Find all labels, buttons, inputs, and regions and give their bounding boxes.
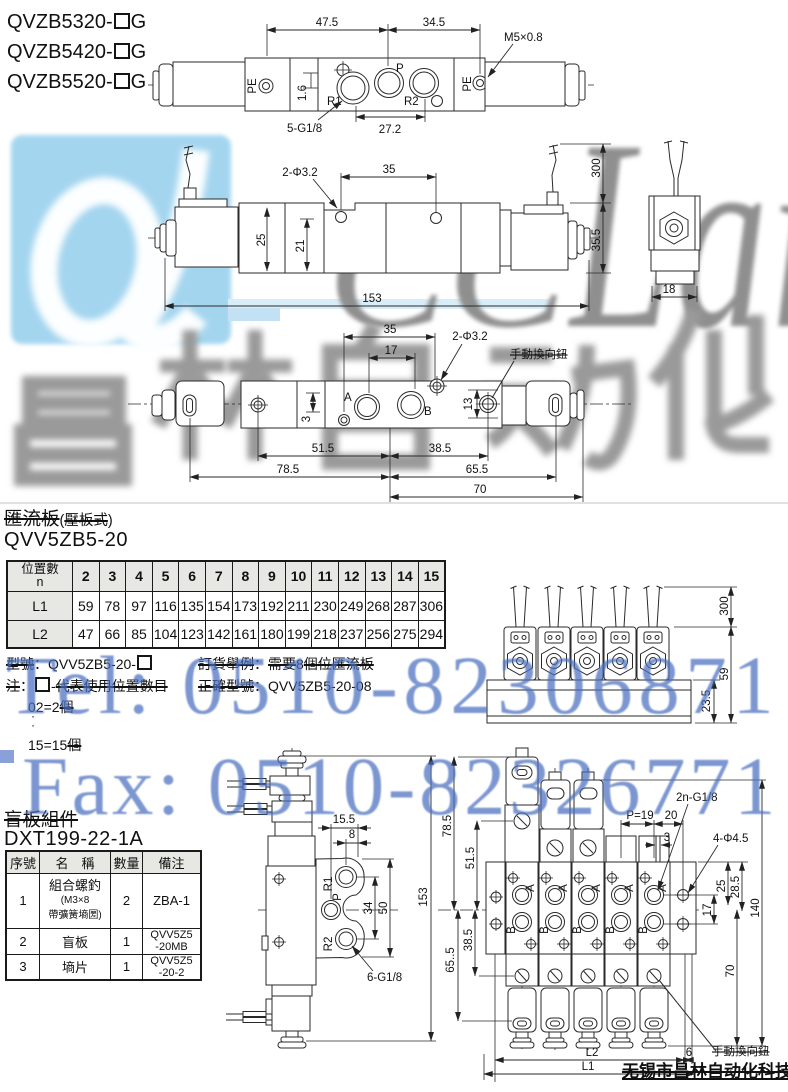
svg-text:35: 35 bbox=[384, 324, 397, 336]
svg-text:21: 21 bbox=[295, 240, 307, 253]
svg-text:8: 8 bbox=[349, 829, 355, 841]
svg-text:18: 18 bbox=[663, 284, 676, 296]
svg-text:2n-G1/8: 2n-G1/8 bbox=[676, 792, 718, 804]
svg-text:P: P bbox=[396, 63, 404, 75]
svg-text:手動換向鈕: 手動換向鈕 bbox=[510, 347, 568, 361]
svg-text:25: 25 bbox=[716, 880, 728, 893]
svg-text:M5×0.8: M5×0.8 bbox=[504, 32, 543, 44]
svg-text:51.5: 51.5 bbox=[312, 443, 334, 455]
svg-text:B: B bbox=[605, 926, 617, 934]
svg-text:38.5: 38.5 bbox=[429, 443, 451, 455]
svg-text:27.2: 27.2 bbox=[379, 124, 401, 136]
svg-text:15.5: 15.5 bbox=[333, 814, 355, 826]
svg-text:L1: L1 bbox=[582, 1061, 595, 1073]
svg-text:B: B bbox=[638, 926, 650, 934]
svg-text:A: A bbox=[525, 884, 537, 892]
svg-text:78.5: 78.5 bbox=[277, 464, 299, 476]
svg-text:70: 70 bbox=[474, 484, 487, 496]
svg-text:6-G1/8: 6-G1/8 bbox=[367, 972, 402, 984]
svg-text:50: 50 bbox=[378, 902, 390, 915]
svg-text:153: 153 bbox=[362, 293, 381, 305]
svg-text:59: 59 bbox=[719, 668, 731, 681]
svg-text:B: B bbox=[506, 926, 518, 934]
svg-text:R1: R1 bbox=[327, 96, 342, 108]
svg-text:2-Φ3.2: 2-Φ3.2 bbox=[282, 167, 317, 179]
svg-text:25: 25 bbox=[256, 234, 268, 247]
svg-text:L2: L2 bbox=[586, 1047, 599, 1059]
svg-text:B: B bbox=[424, 406, 432, 418]
svg-text:3: 3 bbox=[301, 416, 313, 422]
svg-text:5-G1/8: 5-G1/8 bbox=[287, 123, 322, 135]
svg-text:153: 153 bbox=[418, 887, 430, 906]
svg-text:4-Φ4.5: 4-Φ4.5 bbox=[713, 833, 748, 845]
svg-text:13: 13 bbox=[463, 398, 475, 411]
svg-text:PE: PE bbox=[247, 78, 259, 94]
svg-text:A: A bbox=[624, 884, 636, 892]
svg-text:70: 70 bbox=[725, 965, 737, 978]
svg-text:300: 300 bbox=[591, 158, 603, 177]
svg-text:PE: PE bbox=[462, 76, 474, 92]
svg-text:P: P bbox=[332, 893, 344, 901]
svg-text:300: 300 bbox=[719, 596, 731, 615]
svg-text:34.5: 34.5 bbox=[423, 17, 445, 29]
svg-text:78.5: 78.5 bbox=[442, 815, 454, 837]
svg-text:34: 34 bbox=[363, 901, 375, 914]
svg-text:65..5: 65..5 bbox=[445, 947, 457, 973]
svg-text:R1: R1 bbox=[323, 877, 335, 892]
svg-text:3: 3 bbox=[664, 832, 670, 844]
svg-text:47.5: 47.5 bbox=[316, 17, 338, 29]
svg-text:140: 140 bbox=[750, 898, 762, 917]
svg-text:A: A bbox=[344, 392, 352, 404]
svg-text:B: B bbox=[572, 926, 584, 934]
svg-text:2-Φ3.2: 2-Φ3.2 bbox=[452, 331, 487, 343]
svg-text:17: 17 bbox=[702, 904, 714, 917]
svg-text:17: 17 bbox=[385, 345, 398, 357]
svg-text:28.5: 28.5 bbox=[730, 876, 742, 898]
svg-text:B: B bbox=[539, 926, 551, 934]
svg-text:23.5: 23.5 bbox=[701, 690, 713, 712]
svg-text:20: 20 bbox=[665, 810, 678, 822]
svg-text:手動換向鈕: 手動換向鈕 bbox=[712, 1044, 770, 1058]
svg-text:R2: R2 bbox=[404, 96, 419, 108]
svg-text:A: A bbox=[591, 884, 603, 892]
svg-text:65.5: 65.5 bbox=[466, 464, 488, 476]
svg-text:A: A bbox=[558, 884, 570, 892]
svg-text:1.6: 1.6 bbox=[297, 85, 309, 101]
svg-text:35.5: 35.5 bbox=[591, 229, 603, 251]
svg-text:38.5: 38.5 bbox=[463, 929, 475, 951]
svg-text:P=19: P=19 bbox=[626, 810, 653, 822]
svg-text:R2: R2 bbox=[323, 937, 335, 952]
svg-text:35: 35 bbox=[383, 164, 396, 176]
svg-text:51.5: 51.5 bbox=[465, 847, 477, 869]
